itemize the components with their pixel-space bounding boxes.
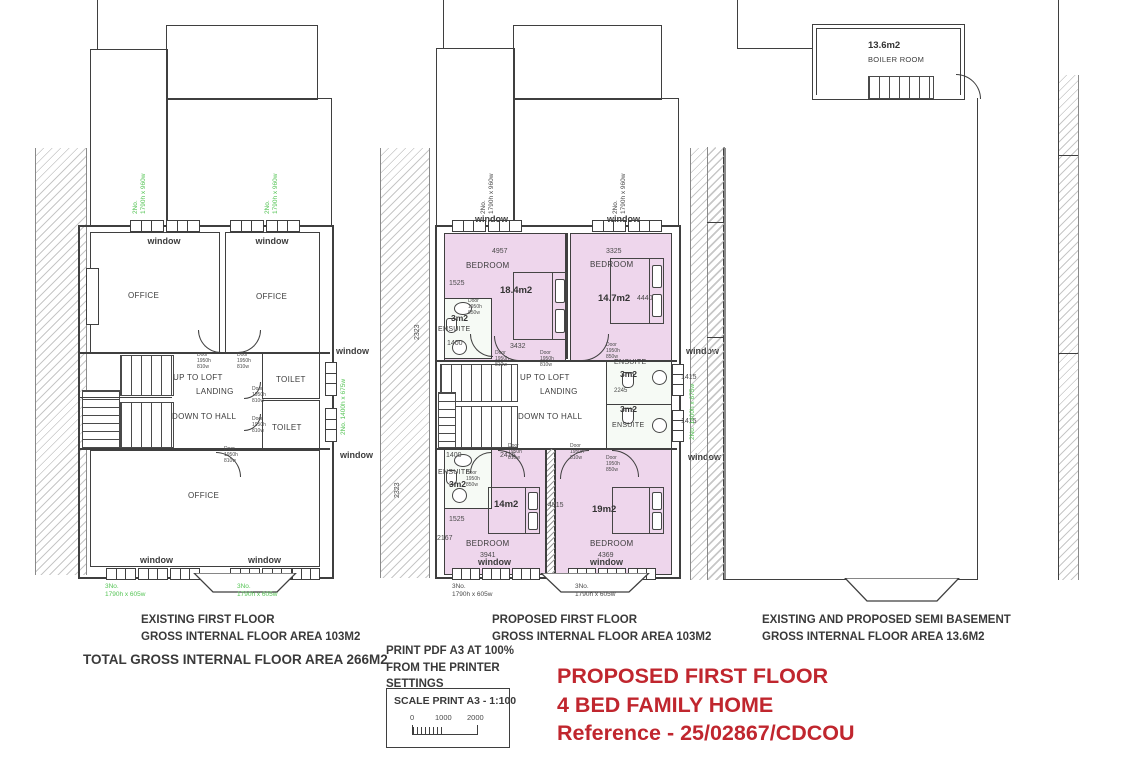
- area-label: 13.6m2: [868, 40, 900, 51]
- window-symbol: [325, 408, 337, 442]
- pillow: [652, 512, 662, 530]
- pillow: [528, 492, 538, 510]
- dimension: 1400: [446, 452, 462, 459]
- door-spec: Door 1950h 810w: [252, 416, 274, 434]
- window-label: window: [478, 557, 511, 567]
- window-spec: 3No. 1790h x 605w: [575, 583, 645, 600]
- window-spec-count: 2No.: [612, 164, 620, 214]
- pillow: [652, 294, 662, 317]
- window-symbol: [325, 362, 337, 396]
- caption-line: GROSS INTERNAL FLOOR AREA 103M2: [492, 629, 711, 646]
- area-label: 3m2: [620, 369, 637, 379]
- window-spec: 2No. 1790h x 960w: [480, 164, 496, 214]
- window-spec: 2No. 1400h x 675w: [340, 357, 350, 435]
- dimension: 2323: [394, 468, 402, 498]
- roof-line: [737, 48, 812, 49]
- pillow: [555, 309, 565, 333]
- room-label: DOWN TO HALL: [172, 412, 236, 421]
- window-spec-size: 1790h x 960w: [140, 164, 148, 214]
- room-label: BEDROOM: [466, 261, 509, 270]
- window-label: window: [336, 346, 369, 356]
- bed-line: [649, 259, 650, 323]
- cavity-wall: [546, 449, 556, 573]
- door-spec: Door 1950h 810w: [224, 446, 246, 464]
- dimension: 1525: [449, 280, 465, 287]
- roof-line: [737, 0, 738, 48]
- bed: [513, 272, 567, 340]
- window-label: window: [140, 555, 173, 565]
- door-spec: Door 1950h 850w: [606, 455, 628, 473]
- window-symbol: [130, 220, 164, 232]
- upper-outline: [166, 25, 318, 100]
- window-symbol: [672, 410, 684, 442]
- window-spec: 2No. 1400h x 675w: [689, 362, 699, 440]
- room-label: TOILET: [276, 375, 306, 384]
- room-label: OFFICE: [128, 291, 159, 300]
- title-line-3: Reference - 25/02867/CDCOU: [557, 719, 855, 748]
- window-spec: 3No. 1790h x 605w: [105, 583, 175, 600]
- stairs: [120, 402, 174, 448]
- scale-ruler: [412, 725, 478, 735]
- pillow: [652, 265, 662, 288]
- upper-outline: [166, 98, 332, 227]
- window-spec-count: 2No.: [132, 164, 140, 214]
- window-spec-count: 3No.: [452, 583, 522, 591]
- dimension: 4515: [548, 502, 564, 509]
- window-symbol: [482, 568, 510, 580]
- caption-existing: EXISTING FIRST FLOOR GROSS INTERNAL FLOO…: [141, 612, 360, 645]
- window-spec-size: 1790h x 960w: [488, 164, 496, 214]
- wall-line: [78, 397, 172, 398]
- window-spec: 3No. 1790h x 605w: [452, 583, 522, 600]
- bed-line: [525, 488, 526, 533]
- wall-recess: [86, 268, 99, 325]
- wall-line: [977, 98, 978, 580]
- area-label: 14m2: [494, 499, 518, 510]
- door-arc: [956, 74, 981, 99]
- title-line-1: PROPOSED FIRST FLOOR: [557, 662, 855, 691]
- window-symbol: [452, 568, 480, 580]
- window-spec-count: 3No.: [575, 583, 645, 591]
- area-label: 3m2: [451, 313, 468, 323]
- office-room: [90, 450, 320, 567]
- door-spec: Door 1950h 850w: [468, 298, 490, 316]
- door-spec: Door 1950h 810w: [540, 350, 562, 368]
- window-spec-count: 2No.: [264, 164, 272, 214]
- sink-icon: [652, 370, 667, 385]
- window-label: window: [248, 555, 281, 565]
- window-spec-size: 1790h x 605w: [105, 591, 175, 599]
- party-wall-hatch: [707, 147, 725, 580]
- title-line-2: 4 BED FAMILY HOME: [557, 691, 855, 720]
- window-symbol: [266, 220, 300, 232]
- upper-outline: [90, 49, 168, 227]
- wall-tick: [1058, 155, 1078, 156]
- scale-ruler-ticks: [413, 727, 445, 734]
- room-label: OFFICE: [188, 491, 219, 500]
- door-spec: Door 1950h 810w: [570, 443, 592, 461]
- window-spec-size: 1790h x 605w: [237, 591, 307, 599]
- window-symbol: [138, 568, 168, 580]
- stairs: [82, 390, 120, 448]
- caption-basement: EXISTING AND PROPOSED SEMI BASEMENT GROS…: [762, 612, 1011, 645]
- room-label: ENSUITE: [614, 359, 646, 366]
- window-symbol: [166, 220, 200, 232]
- roof-line: [443, 0, 444, 48]
- window-spec-size: 1790h x 605w: [575, 591, 645, 599]
- window-spec: 2No. 1790h x 960w: [264, 164, 280, 214]
- area-label: 3m2: [620, 404, 637, 414]
- sink-icon: [652, 418, 667, 433]
- area-label: 19m2: [592, 504, 616, 515]
- window-label: window: [590, 557, 623, 567]
- window-label: window: [340, 450, 373, 460]
- pillow: [528, 512, 538, 530]
- door-spec: Door 1950h 810w: [495, 350, 517, 368]
- wall-line: [435, 448, 677, 450]
- window-spec: 3No. 1790h x 605w: [237, 583, 307, 600]
- upper-outline: [513, 25, 662, 100]
- window-spec-size: 1400h x 675w: [340, 379, 347, 419]
- bed-line: [552, 273, 553, 339]
- pillow: [555, 279, 565, 303]
- room-label: ENSUITE: [438, 326, 470, 333]
- bed-line: [649, 488, 650, 533]
- stairs: [438, 392, 456, 448]
- window-spec: 2No. 1790h x 960w: [612, 164, 628, 214]
- caption-line: EXISTING AND PROPOSED SEMI BASEMENT: [762, 612, 1011, 629]
- window-spec: 2No. 1790h x 960w: [132, 164, 148, 214]
- window-spec-size: 1790h x 960w: [620, 164, 628, 214]
- bed: [612, 487, 664, 534]
- room-label: BEDROOM: [466, 539, 509, 548]
- area-label: 14.7m2: [598, 293, 630, 304]
- bed: [488, 487, 540, 534]
- caption-line: GROSS INTERNAL FLOOR AREA 103M2: [141, 629, 360, 646]
- door-spec: Door 1950h 810w: [252, 386, 274, 404]
- roof-line: [97, 0, 98, 49]
- room-label: DOWN TO HALL: [518, 412, 582, 421]
- caption-line: EXISTING FIRST FLOOR: [141, 612, 360, 629]
- total-area-text: TOTAL GROSS INTERNAL FLOOR AREA 266M2: [83, 652, 388, 667]
- window-label: window: [134, 236, 194, 246]
- room-label: ENSUITE: [612, 422, 644, 429]
- room-label: LANDING: [196, 387, 234, 396]
- dimension: 3432: [510, 343, 526, 350]
- wall-tick: [707, 337, 723, 338]
- print-note: PRINT PDF A3 AT 100% FROM THE PRINTER SE…: [386, 643, 514, 693]
- party-wall-hatch: [1059, 75, 1079, 580]
- window-symbol: [106, 568, 136, 580]
- party-wall-hatch: [380, 148, 430, 578]
- room-label: BOILER ROOM: [868, 55, 924, 64]
- scale-box: SCALE PRINT A3 - 1:100 0 1000 2000: [386, 688, 510, 748]
- window-label: window: [607, 214, 640, 224]
- scale-tick-1000: 1000: [435, 713, 452, 722]
- scale-title: SCALE PRINT A3 - 1:100: [394, 695, 516, 707]
- door-spec: Door 1950h 810w: [237, 352, 259, 370]
- room-label: OFFICE: [256, 292, 287, 301]
- upper-outline: [513, 98, 679, 227]
- door-spec: Door 1950h 810w: [197, 352, 219, 370]
- window-spec-size: 1790h x 960w: [272, 164, 280, 214]
- room-label: LANDING: [540, 387, 578, 396]
- room-label: UP TO LOFT: [520, 373, 570, 382]
- window-spec-count: 2No.: [689, 426, 696, 440]
- stairs: [868, 76, 934, 99]
- room-label: TOILET: [272, 423, 302, 432]
- window-spec-count: 3No.: [237, 583, 307, 591]
- pillow: [652, 492, 662, 510]
- dimension: 4957: [492, 248, 508, 255]
- window-spec-count: 2No.: [340, 421, 347, 435]
- window-label: window: [242, 236, 302, 246]
- window-symbol: [230, 220, 264, 232]
- wall-tick: [1058, 353, 1078, 354]
- area-label: 18.4m2: [500, 285, 532, 296]
- window-label: window: [475, 214, 508, 224]
- drawing-title-block: PROPOSED FIRST FLOOR 4 BED FAMILY HOME R…: [557, 662, 855, 748]
- dimension: 1400: [447, 340, 463, 347]
- bay-notch: [844, 578, 960, 606]
- room-label: BEDROOM: [590, 539, 633, 548]
- door-spec: Door 1950h 850w: [606, 342, 628, 360]
- caption-line: GROSS INTERNAL FLOOR AREA 13.6M2: [762, 629, 1011, 646]
- scale-tick-2000: 2000: [467, 713, 484, 722]
- stairs: [120, 355, 174, 396]
- dimension: 3325: [606, 248, 622, 255]
- print-note-line: PRINT PDF A3 AT 100%: [386, 643, 514, 660]
- window-spec-count: 3No.: [105, 583, 175, 591]
- window-spec-count: 2No.: [480, 164, 488, 214]
- area-label: 3m2: [449, 479, 466, 489]
- room-label: UP TO LOFT: [173, 373, 223, 382]
- window-symbol: [512, 568, 540, 580]
- floor-plan-drawing: window window OFFICE OFFICE UP TO LOFT L…: [0, 0, 1140, 759]
- dimension: 4440: [637, 295, 653, 302]
- sink-icon: [452, 488, 467, 503]
- scale-tick-0: 0: [410, 713, 414, 722]
- dimension: 2245: [614, 388, 627, 394]
- door-spec: Door 1950h 810w: [508, 443, 530, 461]
- room-label: BEDROOM: [590, 260, 633, 269]
- dimension: 1525: [449, 516, 465, 523]
- wall-tick: [707, 222, 723, 223]
- window-spec-size: 1790h x 605w: [452, 591, 522, 599]
- door-spec: Door 1950h 850w: [466, 470, 488, 488]
- dimension: 2323: [414, 310, 422, 340]
- caption-proposed: PROPOSED FIRST FLOOR GROSS INTERNAL FLOO…: [492, 612, 711, 645]
- caption-line: PROPOSED FIRST FLOOR: [492, 612, 711, 629]
- print-note-line: FROM THE PRINTER: [386, 660, 514, 677]
- window-spec-size: 1400h x 675w: [689, 384, 696, 424]
- upper-outline: [436, 48, 515, 227]
- dimension: 2167: [437, 535, 453, 542]
